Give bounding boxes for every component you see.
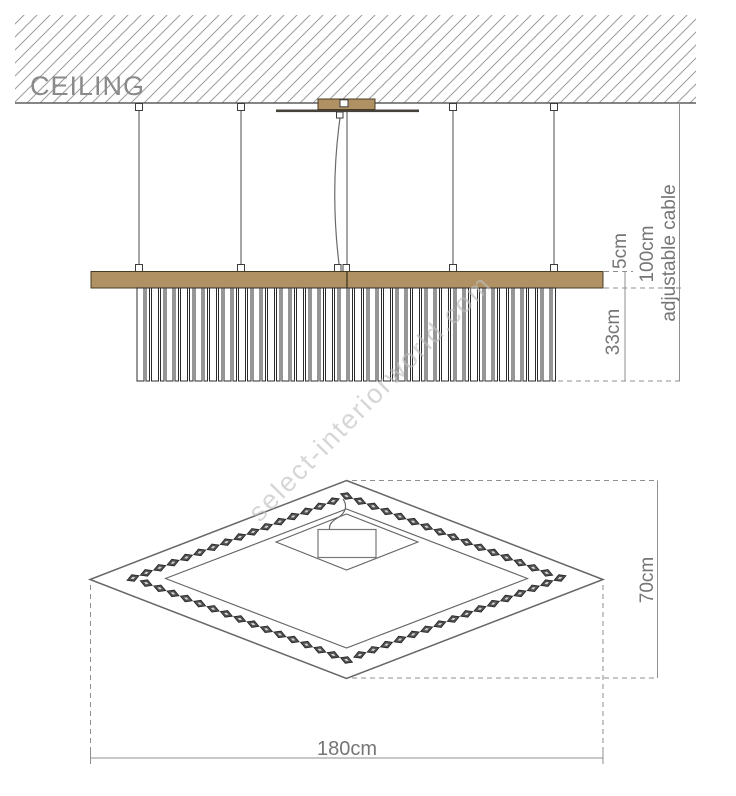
crystal-rod xyxy=(277,288,281,381)
bead xyxy=(419,624,434,635)
bead-chain xyxy=(126,490,568,665)
bead xyxy=(192,547,207,558)
bead xyxy=(393,634,408,645)
bead xyxy=(232,613,247,624)
ceiling-connector xyxy=(450,104,457,111)
crystal-rod xyxy=(311,288,318,381)
bead xyxy=(166,557,181,568)
bead xyxy=(446,613,461,624)
bead xyxy=(339,490,354,501)
bar-connector xyxy=(551,265,558,272)
bead xyxy=(459,608,474,619)
crystal-rod xyxy=(306,288,310,381)
front-dimensions: 5cm 100cm adjustable cable 33cm xyxy=(558,103,681,381)
bead xyxy=(379,639,394,650)
bead xyxy=(206,542,221,553)
bead xyxy=(286,634,301,645)
bead xyxy=(326,649,341,660)
bead xyxy=(246,618,261,629)
bead xyxy=(272,629,287,640)
crystal-rod xyxy=(369,288,376,381)
bead xyxy=(272,516,287,527)
crystal-rod xyxy=(552,288,556,381)
bar-center-connector-left xyxy=(335,265,342,272)
ceiling-label: CEILING xyxy=(30,71,145,101)
bead xyxy=(393,511,408,522)
crystal-rod xyxy=(204,288,208,381)
bead xyxy=(473,542,488,553)
bead xyxy=(179,593,194,604)
bead xyxy=(526,562,541,573)
crystal-rod xyxy=(514,288,521,381)
crystal-rod xyxy=(175,288,179,381)
bead xyxy=(192,598,207,609)
bead xyxy=(526,583,541,594)
bar-connector xyxy=(238,265,245,272)
bar-center-connector-right xyxy=(343,265,350,272)
crystal-rod xyxy=(523,288,527,381)
bead xyxy=(419,521,434,532)
cable-length-label: 100cm xyxy=(637,225,658,282)
crystal-rod xyxy=(494,288,498,381)
bead xyxy=(179,552,194,563)
bead xyxy=(139,567,154,578)
drawing-canvas: CEILING 5cm 100cm adjustable cable 33cm xyxy=(0,0,736,796)
crystal-rod xyxy=(146,288,150,381)
bead xyxy=(486,598,501,609)
bead xyxy=(473,603,488,614)
crystal-rod xyxy=(326,288,333,381)
crystal-rod xyxy=(219,288,223,381)
bead xyxy=(299,639,314,650)
crystal-rod xyxy=(166,288,173,381)
cable-note-label: adjustable cable xyxy=(659,184,680,321)
bead xyxy=(379,506,394,517)
crystal-rod xyxy=(152,288,159,381)
bead xyxy=(152,583,167,594)
crystal-rod xyxy=(529,288,536,381)
bead xyxy=(499,593,514,604)
bar-connector xyxy=(136,265,143,272)
crystal-rod xyxy=(190,288,194,381)
bead xyxy=(433,526,448,537)
bead xyxy=(446,531,461,542)
crystal-rod xyxy=(282,288,289,381)
bead xyxy=(499,552,514,563)
crystal-rod xyxy=(364,288,368,381)
ceiling-connector xyxy=(551,104,558,111)
bead xyxy=(299,506,314,517)
crystal-rod xyxy=(248,288,252,381)
bead xyxy=(232,531,247,542)
canopy-cable-exit xyxy=(337,112,344,118)
bead xyxy=(286,511,301,522)
bead xyxy=(259,624,274,635)
fringe-length-label: 33cm xyxy=(603,309,624,355)
bead xyxy=(219,536,234,547)
bead xyxy=(352,649,367,660)
bead xyxy=(539,577,554,588)
crystal-rod xyxy=(340,288,347,381)
bead xyxy=(539,567,554,578)
ceiling-connector xyxy=(238,104,245,111)
bead xyxy=(312,644,327,655)
crystal-rod xyxy=(538,288,542,381)
bead xyxy=(406,629,421,640)
crystal-rod xyxy=(291,288,295,381)
dimension-drawing: CEILING 5cm 100cm adjustable cable 33cm xyxy=(0,0,736,796)
plan-width-label: 180cm xyxy=(317,738,377,760)
crystal-rod xyxy=(349,288,353,381)
bead xyxy=(339,654,354,665)
bead xyxy=(486,547,501,558)
crystal-rod xyxy=(181,288,188,381)
canopy-assembly xyxy=(276,99,419,272)
rod-fringe xyxy=(137,288,556,381)
bead xyxy=(513,588,528,599)
bead xyxy=(406,516,421,527)
bead xyxy=(206,603,221,614)
bead xyxy=(126,572,141,583)
crystal-rod xyxy=(233,288,237,381)
bead xyxy=(152,562,167,573)
crystal-rod xyxy=(195,288,202,381)
crystal-rod xyxy=(161,288,165,381)
crystal-rod xyxy=(509,288,513,381)
crystal-rod xyxy=(335,288,339,381)
bead xyxy=(513,557,528,568)
crystal-rod xyxy=(543,288,550,381)
crystal-rod xyxy=(485,288,492,381)
bead xyxy=(433,618,448,629)
crystal-rod xyxy=(500,288,507,381)
plan-depth-label: 70cm xyxy=(637,557,658,603)
bead xyxy=(553,572,568,583)
bead xyxy=(219,608,234,619)
bead xyxy=(326,495,341,506)
crystal-rod xyxy=(320,288,324,381)
bead xyxy=(166,588,181,599)
bead xyxy=(139,577,154,588)
frame-thickness-label: 5cm xyxy=(610,233,631,269)
bead xyxy=(459,536,474,547)
ceiling-connector xyxy=(136,104,143,111)
bead xyxy=(366,644,381,655)
bead xyxy=(352,495,367,506)
slack-cable xyxy=(335,118,340,264)
canopy-plan-rect xyxy=(318,530,376,558)
crystal-rod xyxy=(262,288,266,381)
plan-view: 70cm 180cm xyxy=(90,481,658,765)
canopy-top-connector xyxy=(340,100,348,107)
crystal-rod xyxy=(253,288,260,381)
bar-connector xyxy=(450,265,457,272)
bead xyxy=(246,526,261,537)
bead xyxy=(312,501,327,512)
crystal-rod xyxy=(137,288,144,381)
crystal-rod xyxy=(297,288,304,381)
crystal-rod xyxy=(210,288,217,381)
crystal-rod xyxy=(268,288,275,381)
crystal-rod xyxy=(224,288,231,381)
bead xyxy=(366,501,381,512)
crystal-rod xyxy=(239,288,246,381)
crystal-rod xyxy=(355,288,362,381)
